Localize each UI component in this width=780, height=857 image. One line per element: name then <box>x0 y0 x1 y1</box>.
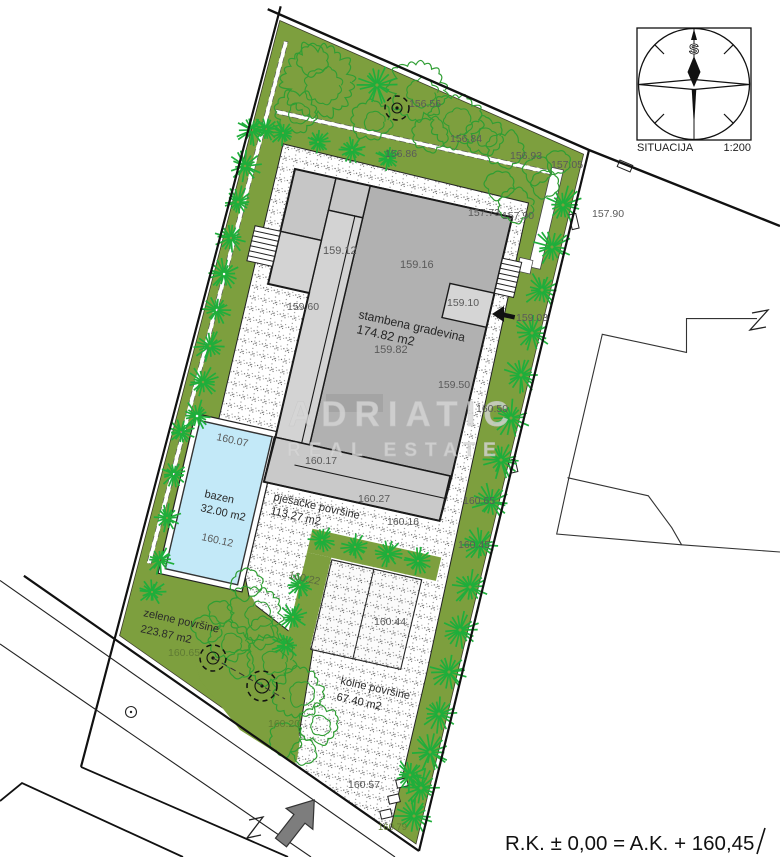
svg-text:157.90: 157.90 <box>502 210 534 222</box>
svg-text:160.44: 160.44 <box>374 616 406 628</box>
svg-text:156.84: 156.84 <box>450 133 482 145</box>
svg-text:159.50: 159.50 <box>438 379 470 391</box>
svg-text:159.16: 159.16 <box>400 259 434 271</box>
svg-text:156.86: 156.86 <box>385 148 417 160</box>
svg-text:156.56: 156.56 <box>409 98 441 110</box>
svg-text:1:200: 1:200 <box>723 142 751 154</box>
svg-text:160.20: 160.20 <box>268 718 300 730</box>
svg-text:160.27: 160.27 <box>358 493 390 505</box>
svg-text:159.10: 159.10 <box>447 297 479 309</box>
svg-text:157.05: 157.05 <box>551 159 583 171</box>
svg-text:159.60: 159.60 <box>287 301 319 313</box>
svg-text:159.12: 159.12 <box>323 245 357 257</box>
svg-text:157.73: 157.73 <box>468 207 500 219</box>
svg-text:159.03: 159.03 <box>516 312 548 324</box>
svg-text:160.57: 160.57 <box>348 779 380 791</box>
svg-text:159.82: 159.82 <box>374 344 408 356</box>
svg-text:SITUACIJA: SITUACIJA <box>637 142 694 154</box>
svg-text:160.17: 160.17 <box>305 455 337 467</box>
svg-text:R.K. ± 0,00 = A.K. + 160,45: R.K. ± 0,00 = A.K. + 160,45 <box>505 832 754 855</box>
svg-text:160.65: 160.65 <box>463 495 495 507</box>
svg-text:157.90: 157.90 <box>592 208 624 220</box>
svg-text:160.50: 160.50 <box>476 403 508 415</box>
svg-text:160.16: 160.16 <box>387 516 419 528</box>
svg-text:160.79: 160.79 <box>378 822 407 833</box>
svg-text:S: S <box>689 41 699 58</box>
svg-text:160.45: 160.45 <box>458 539 490 551</box>
svg-text:156.93: 156.93 <box>510 150 542 162</box>
svg-text:160.65: 160.65 <box>168 647 200 659</box>
